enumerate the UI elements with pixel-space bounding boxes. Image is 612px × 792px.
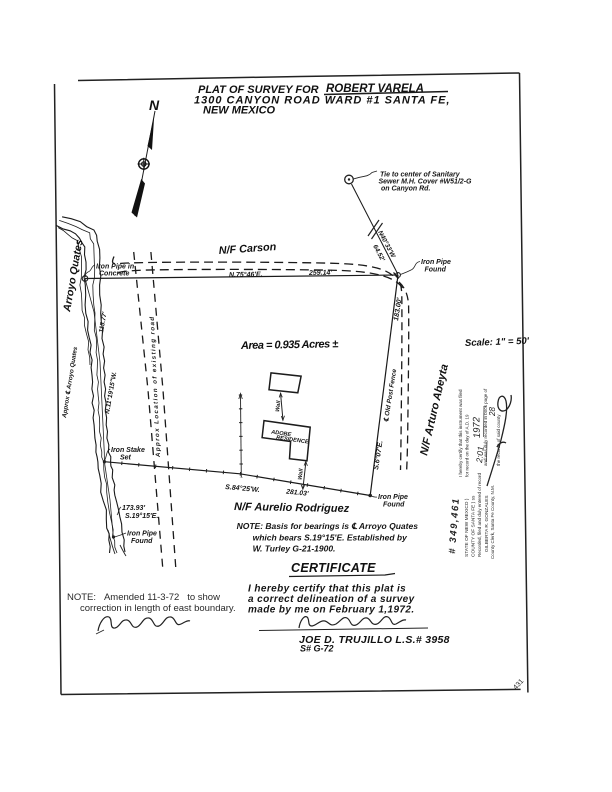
svg-text:made by me on February 1,1972.: made by me on February 1,1972. — [248, 605, 415, 616]
svg-text:on Canyon Rd.: on Canyon Rd. — [381, 186, 430, 193]
svg-text:I hereby certify that this pla: I hereby certify that this plat is — [248, 584, 406, 595]
svg-text:N/F Arturo Abeyta: N/F Arturo Abeyta — [418, 363, 451, 457]
svg-text:Iron Stake: Iron Stake — [111, 447, 145, 454]
svg-text:W. Turley G-21-1900.: W. Turley G-21-1900. — [253, 544, 336, 554]
svg-text:431: 431 — [512, 678, 525, 691]
svg-text:# 349,461: # 349,461 — [447, 497, 462, 554]
svg-text:Scale: 1" = 50': Scale: 1" = 50' — [465, 336, 530, 349]
svg-text:Iron Pipe: Iron Pipe — [127, 531, 157, 538]
svg-text:173.93': 173.93' — [122, 505, 145, 512]
svg-text:Iron Pipe: Iron Pipe — [378, 494, 408, 501]
svg-text:Found: Found — [383, 502, 405, 509]
svg-text:Set: Set — [120, 455, 132, 462]
svg-text:COUNTY OF SANTA FE ) ss: COUNTY OF SANTA FE ) ss — [471, 495, 477, 557]
svg-text:which bears S.19°15'E. Establi: which bears S.19°15'E. Established by — [253, 533, 409, 543]
svg-text:Area = 0.935 Acres ±: Area = 0.935 Acres ± — [240, 338, 338, 352]
svg-text:County Clerk, Santa Fe County,: County Clerk, Santa Fe County, N.M. — [490, 485, 495, 559]
svg-text:RESIDENCE: RESIDENCE — [276, 435, 309, 446]
svg-text:I hereby certify that this ins: I hereby certify that this instrument wa… — [458, 389, 463, 477]
svg-text:Sewer M.H. Cover #W51/2-G: Sewer M.H. Cover #W51/2-G — [379, 179, 473, 186]
svg-text:Iron Pipe in: Iron Pipe in — [96, 264, 134, 271]
svg-text:S.6°07'E.: S.6°07'E. — [372, 440, 385, 470]
svg-text:N.75°46'E.: N.75°46'E. — [229, 270, 263, 279]
svg-text:the records of said county: the records of said county — [496, 414, 501, 466]
svg-text:STATE OF NEW MEXICO ): STATE OF NEW MEXICO ) — [464, 498, 470, 557]
svg-text:Approx Location of existing: Approx Location of existing road — [149, 315, 162, 458]
svg-text:NOTE: Basis for bearings is ℄: NOTE: Basis for bearings is ℄ Arroyo Qua… — [237, 521, 419, 531]
svg-text:S# G-72: S# G-72 — [300, 644, 334, 654]
svg-text:S.84°25'W.: S.84°25'W. — [225, 483, 260, 494]
svg-text:for record on the day of: for record on the day of A.D. 19 — [465, 414, 470, 477]
svg-text:Recorded, filed and duly enter: Recorded, filed and duly entered of reco… — [477, 472, 482, 557]
svg-text:Approx ℄ Arroyo Quates: Approx ℄ Arroyo Quates — [61, 346, 79, 420]
svg-text:NOTE: Amended 11-3-72 to s: NOTE: Amended 11-3-72 to show — [67, 592, 220, 603]
svg-text:Found: Found — [131, 538, 153, 545]
svg-text:S.19°15'E.: S.19°15'E. — [125, 512, 158, 520]
svg-text:N: N — [149, 97, 160, 113]
svg-text:correction in length of east b: correction in length of east boundary. — [80, 603, 236, 614]
svg-text:Iron Pipe: Iron Pipe — [421, 259, 451, 266]
svg-text:NEW MEXICO: NEW MEXICO — [203, 105, 276, 117]
svg-text:CERTIFICATE: CERTIFICATE — [291, 561, 376, 575]
svg-text:N/F Carson: N/F Carson — [218, 241, 277, 257]
svg-text:a correct delineation of a sur: a correct delineation of a survey — [248, 594, 415, 605]
svg-text:Tie to center of Sanitary: Tie to center of Sanitary — [380, 172, 461, 179]
svg-text:281.03': 281.03' — [285, 488, 309, 497]
svg-text:N/F Aurelio Rodriguez: N/F Aurelio Rodriguez — [234, 501, 350, 515]
svg-text:Wall: Wall — [275, 400, 282, 412]
svg-text:1972: 1972 — [471, 416, 483, 438]
svg-text:Found: Found — [425, 267, 447, 274]
svg-text:115.77': 115.77' — [98, 311, 109, 333]
